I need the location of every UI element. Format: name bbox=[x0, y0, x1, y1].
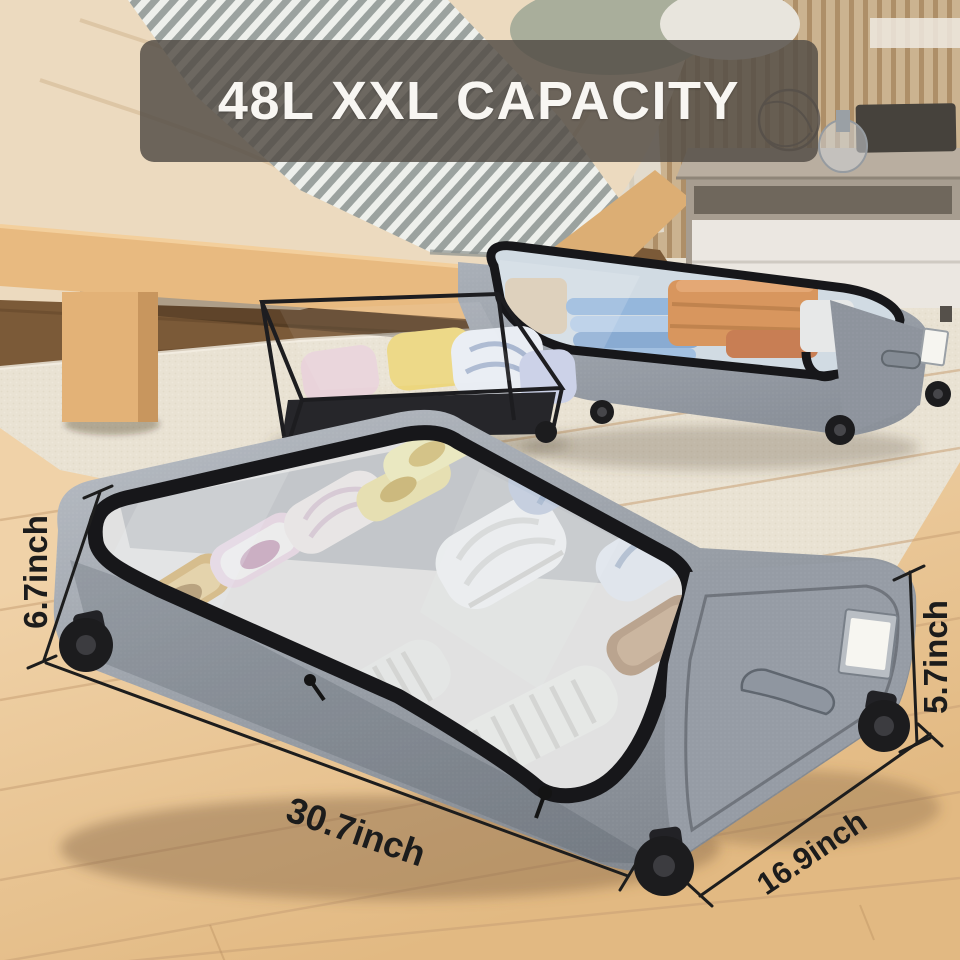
bg-box-handle bbox=[881, 350, 920, 369]
wall-highlight bbox=[870, 18, 960, 48]
tray-decor bbox=[856, 103, 957, 153]
bg-box-label-card bbox=[920, 328, 948, 365]
capacity-banner-text: 48L XXL CAPACITY bbox=[218, 70, 740, 132]
nightstand-shelf-gap bbox=[694, 186, 952, 214]
cart-glass bbox=[280, 302, 520, 390]
fg-box-label-card bbox=[838, 609, 897, 679]
product-photo: 48L XXL CAPACITY 6.7inch 5.7inch 30.7inc… bbox=[0, 0, 960, 960]
capacity-banner: 48L XXL CAPACITY bbox=[140, 40, 818, 162]
